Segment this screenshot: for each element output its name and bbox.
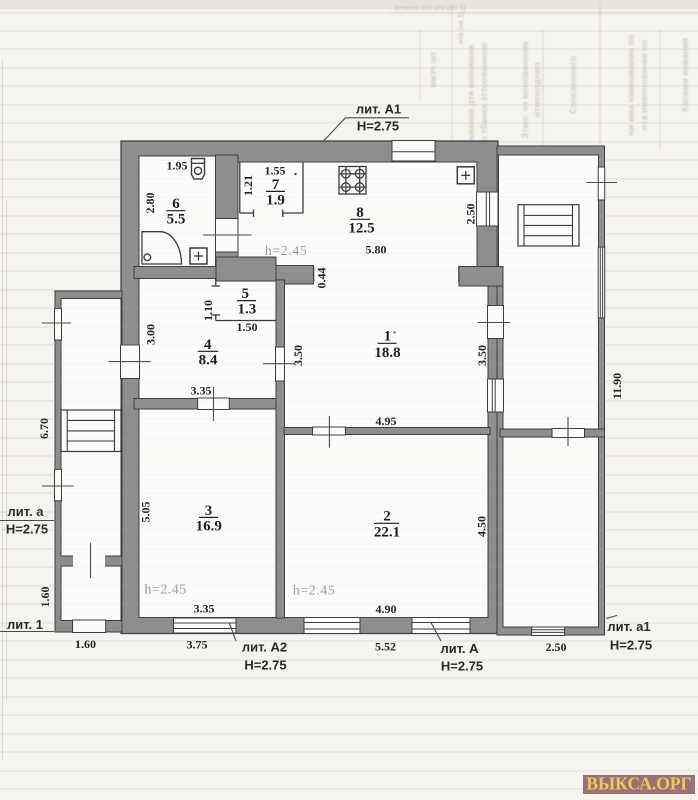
svg-text:5: 5 bbox=[242, 286, 250, 302]
svg-text:Н=2.75: Н=2.75 bbox=[610, 638, 652, 653]
svg-text:снвание дтя вноовния: снвание дтя вноовния bbox=[466, 45, 476, 146]
svg-text:6.70: 6.70 bbox=[37, 418, 51, 439]
svg-text:h=2.45: h=2.45 bbox=[144, 583, 186, 598]
svg-text:3: 3 bbox=[205, 503, 213, 519]
svg-text:Капими нования: Капими нования bbox=[680, 38, 690, 112]
svg-text:16.9: 16.9 bbox=[196, 519, 222, 535]
svg-text:вмтч ол: вмтч ол bbox=[428, 52, 438, 87]
svg-text:по тбанка зттоованною: по тбанка зттоованною bbox=[479, 42, 489, 147]
svg-text:18.8: 18.8 bbox=[374, 345, 400, 361]
svg-text:Н=2.75: Н=2.75 bbox=[357, 119, 399, 134]
svg-text:1.21: 1.21 bbox=[241, 175, 255, 196]
svg-text:1.95: 1.95 bbox=[167, 159, 188, 173]
svg-text:3.75: 3.75 bbox=[187, 638, 208, 652]
svg-text:Н=2.75: Н=2.75 bbox=[441, 659, 483, 674]
svg-text:ни има нменование по: ни има нменование по bbox=[626, 34, 636, 135]
svg-text:4.50: 4.50 bbox=[475, 516, 489, 537]
svg-text:1.3: 1.3 bbox=[238, 302, 257, 318]
svg-text:1.60: 1.60 bbox=[75, 637, 96, 651]
svg-text:3.50: 3.50 bbox=[291, 345, 305, 366]
svg-text:8: 8 bbox=[356, 205, 364, 221]
svg-text:3.35: 3.35 bbox=[191, 384, 212, 398]
svg-text:h=2.45: h=2.45 bbox=[265, 244, 307, 259]
svg-text:2: 2 bbox=[383, 509, 391, 525]
svg-text:лит. а: лит. а bbox=[8, 504, 45, 519]
svg-text:отменлднил: отменлднил bbox=[532, 62, 542, 117]
svg-text:1.10: 1.10 bbox=[201, 300, 215, 321]
svg-text:5.80: 5.80 bbox=[366, 243, 387, 257]
svg-text:ВЫКСА.ОРГ: ВЫКСА.ОРГ bbox=[586, 774, 691, 794]
svg-text:лит. 1: лит. 1 bbox=[7, 617, 43, 632]
svg-text:ита (ап 1): ита (ап 1) bbox=[458, 12, 465, 44]
svg-text:11.90: 11.90 bbox=[610, 373, 624, 399]
svg-text:1.55: 1.55 bbox=[265, 164, 286, 178]
svg-text:2.50: 2.50 bbox=[546, 640, 567, 654]
svg-text:6: 6 bbox=[172, 196, 180, 212]
svg-text:1: 1 bbox=[384, 328, 392, 344]
svg-text:Н=2.75: Н=2.75 bbox=[244, 658, 286, 673]
svg-text:нта именнование но: нта именнование но bbox=[639, 39, 649, 130]
svg-text:Н=2.75: Н=2.75 bbox=[6, 522, 48, 537]
svg-text:лит. А2: лит. А2 bbox=[242, 640, 287, 655]
svg-text:5.5: 5.5 bbox=[167, 212, 186, 228]
svg-text:итвена нто его (ап 1): итвена нто его (ап 1) bbox=[394, 5, 465, 12]
svg-text:лит. а1: лит. а1 bbox=[607, 619, 650, 634]
svg-text:лит. А1: лит. А1 bbox=[356, 102, 401, 117]
svg-text:2.80: 2.80 bbox=[143, 193, 157, 214]
svg-text:2.50: 2.50 bbox=[464, 204, 478, 225]
svg-text:5.52: 5.52 bbox=[375, 640, 396, 654]
svg-text:Зтмо. нз монованною: Зтмо. нз монованною bbox=[520, 41, 530, 138]
svg-text:Солсаенного: Солсаенного bbox=[568, 56, 578, 114]
svg-text:лит. А: лит. А bbox=[440, 641, 479, 656]
svg-text:8.4: 8.4 bbox=[199, 353, 218, 369]
svg-text:3.50: 3.50 bbox=[475, 345, 489, 366]
svg-text:1.9: 1.9 bbox=[266, 193, 285, 209]
svg-text:4.95: 4.95 bbox=[376, 414, 397, 428]
svg-text:22.1: 22.1 bbox=[374, 525, 400, 541]
